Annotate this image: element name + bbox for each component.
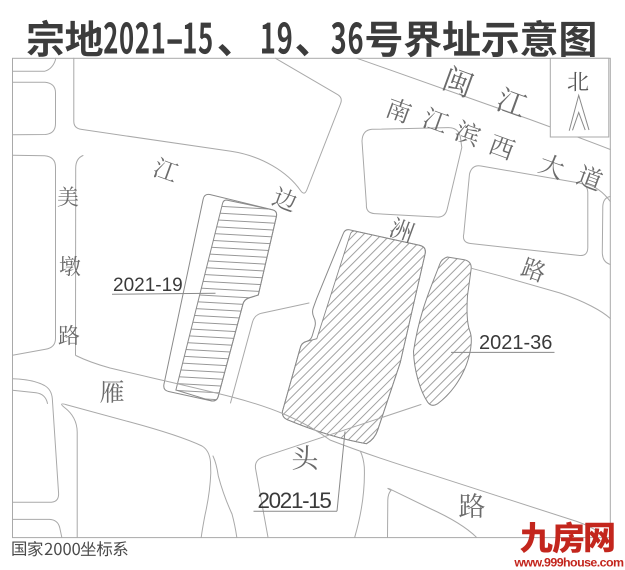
svg-text:2021-36: 2021-36 [479,332,552,354]
svg-text:2021-19: 2021-19 [113,275,183,296]
svg-text:2021-15: 2021-15 [258,488,332,513]
svg-text:www.999house.com: www.999house.com [513,556,624,570]
